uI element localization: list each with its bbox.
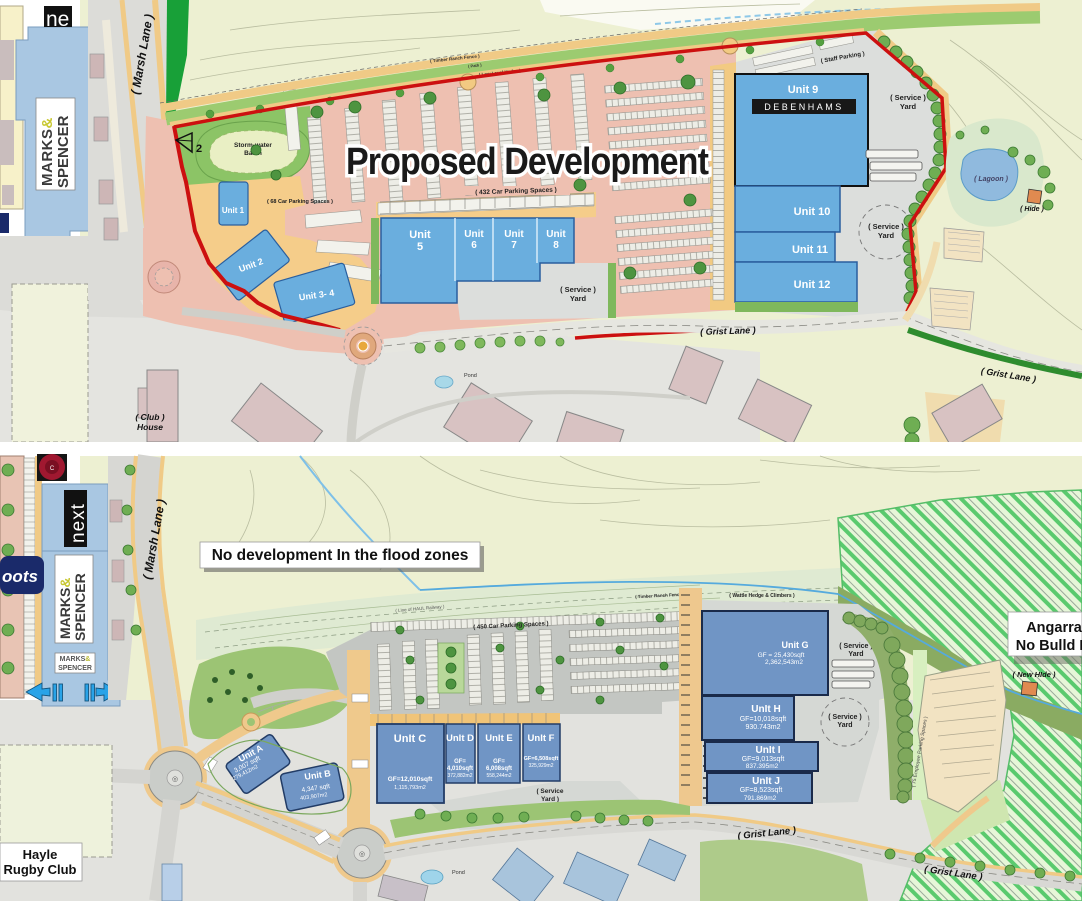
svg-text:No development In the flood zo: No development In the flood zones bbox=[212, 547, 469, 564]
svg-text:Unit: Unit bbox=[504, 229, 524, 240]
svg-text:SPENCER: SPENCER bbox=[58, 665, 92, 672]
svg-text:oots: oots bbox=[2, 567, 38, 586]
svg-text:7: 7 bbox=[511, 240, 517, 251]
svg-text:8: 8 bbox=[553, 240, 559, 251]
svg-text:GF=12,010sqft: GF=12,010sqft bbox=[388, 776, 433, 783]
svg-text:Pond: Pond bbox=[464, 373, 477, 379]
svg-text:GF=: GF= bbox=[493, 759, 505, 765]
svg-text:No Bulld L: No Bulld L bbox=[1016, 638, 1082, 654]
svg-text:Proposed Development: Proposed Development bbox=[346, 141, 709, 183]
svg-text:( Service ): ( Service ) bbox=[890, 93, 926, 102]
svg-text:UnIt E: UnIt E bbox=[485, 733, 512, 744]
svg-text:Pond: Pond bbox=[452, 870, 465, 876]
svg-text:Yard: Yard bbox=[837, 722, 852, 729]
svg-text:House: House bbox=[137, 422, 163, 432]
svg-text:Yard: Yard bbox=[900, 102, 917, 111]
svg-text:837.395m2: 837.395m2 bbox=[746, 763, 779, 770]
svg-text:325,929m2: 325,929m2 bbox=[528, 763, 553, 769]
svg-text:Unit 9: Unit 9 bbox=[788, 84, 819, 96]
svg-text:UnIt C: UnIt C bbox=[394, 733, 426, 745]
svg-text:◎: ◎ bbox=[172, 776, 178, 783]
svg-text:Yard: Yard bbox=[878, 231, 895, 240]
svg-text:Rugby Club: Rugby Club bbox=[4, 862, 77, 877]
svg-text:UnIt F: UnIt F bbox=[528, 733, 555, 744]
svg-text:372,882m2: 372,882m2 bbox=[447, 773, 472, 779]
svg-text:Yard: Yard bbox=[570, 294, 587, 303]
svg-text:( Hide ): ( Hide ) bbox=[1020, 206, 1044, 213]
svg-text:Unit 11: Unit 11 bbox=[792, 244, 828, 256]
svg-text:GF=6,508sqft: GF=6,508sqft bbox=[524, 756, 559, 762]
svg-text:930.743m2: 930.743m2 bbox=[745, 724, 780, 731]
svg-text:SPENCER: SPENCER bbox=[72, 573, 88, 641]
svg-text:( Service ): ( Service ) bbox=[868, 222, 904, 231]
svg-text:( Service ): ( Service ) bbox=[839, 643, 872, 650]
svg-text:Unit 10: Unit 10 bbox=[794, 206, 831, 218]
svg-text:( Club ): ( Club ) bbox=[135, 412, 164, 422]
svg-text:( Lagoon ): ( Lagoon ) bbox=[974, 176, 1008, 183]
svg-text:791.869m2: 791.869m2 bbox=[744, 795, 777, 802]
svg-text:GF = 25,430sqft: GF = 25,430sqft bbox=[758, 652, 805, 659]
svg-text:UnIt I: UnIt I bbox=[756, 745, 781, 756]
svg-text:UnIt J: UnIt J bbox=[752, 776, 780, 787]
svg-text:( Service: ( Service bbox=[536, 788, 563, 795]
svg-text:Unit: Unit bbox=[409, 229, 431, 241]
svg-text:GF=10,018sqft: GF=10,018sqft bbox=[740, 716, 787, 723]
svg-text:UnIt H: UnIt H bbox=[751, 704, 780, 715]
svg-text:MARKS&: MARKS& bbox=[57, 578, 73, 639]
svg-text:Unit 1: Unit 1 bbox=[222, 206, 245, 215]
svg-text:( Grist Lane ): ( Grist Lane ) bbox=[700, 325, 756, 337]
svg-text:Yard ): Yard ) bbox=[541, 796, 559, 803]
svg-text:( Wattle Hedge & Climbers ): ( Wattle Hedge & Climbers ) bbox=[729, 593, 795, 599]
svg-text:next: next bbox=[68, 503, 89, 543]
svg-text:GF=8,523sqft: GF=8,523sqft bbox=[740, 787, 783, 794]
svg-text:ne: ne bbox=[46, 8, 69, 31]
svg-text:Angarra: Angarra bbox=[1026, 620, 1082, 636]
svg-text:2,362,543m2: 2,362,543m2 bbox=[765, 659, 803, 666]
svg-text:C: C bbox=[50, 466, 55, 472]
svg-text:( Service ): ( Service ) bbox=[560, 285, 596, 294]
svg-text:Hayle: Hayle bbox=[23, 847, 58, 862]
svg-text:1,115,793m2: 1,115,793m2 bbox=[394, 785, 426, 791]
svg-text:Unit: Unit bbox=[546, 229, 566, 240]
svg-text:Unit G: Unit G bbox=[782, 640, 809, 650]
svg-text:UnIt D: UnIt D bbox=[446, 733, 474, 744]
svg-text:Unit 12: Unit 12 bbox=[794, 279, 831, 291]
svg-text:DEBENHAMS: DEBENHAMS bbox=[764, 102, 844, 112]
svg-text:4,010sqft: 4,010sqft bbox=[447, 766, 473, 772]
svg-text:MARKS&: MARKS& bbox=[60, 656, 91, 663]
svg-text:558,244m2: 558,244m2 bbox=[486, 773, 511, 779]
svg-text:Yard: Yard bbox=[848, 651, 863, 658]
svg-text:◎: ◎ bbox=[359, 851, 365, 858]
svg-text:MARKS&: MARKS& bbox=[39, 117, 56, 186]
svg-text:( Service ): ( Service ) bbox=[828, 714, 861, 721]
svg-text:5: 5 bbox=[417, 241, 423, 253]
svg-text:Unit: Unit bbox=[464, 229, 484, 240]
svg-text:2: 2 bbox=[196, 143, 202, 155]
svg-text:( 68 Car Parking Spaces ): ( 68 Car Parking Spaces ) bbox=[267, 199, 333, 205]
svg-text:GF=9,013sqft: GF=9,013sqft bbox=[742, 756, 785, 763]
svg-text:( New HIde ): ( New HIde ) bbox=[1013, 670, 1056, 679]
svg-text:SPENCER: SPENCER bbox=[55, 115, 72, 188]
svg-text:GF=: GF= bbox=[454, 759, 466, 765]
svg-text:6,008sqft: 6,008sqft bbox=[486, 766, 512, 772]
svg-text:6: 6 bbox=[471, 240, 477, 251]
